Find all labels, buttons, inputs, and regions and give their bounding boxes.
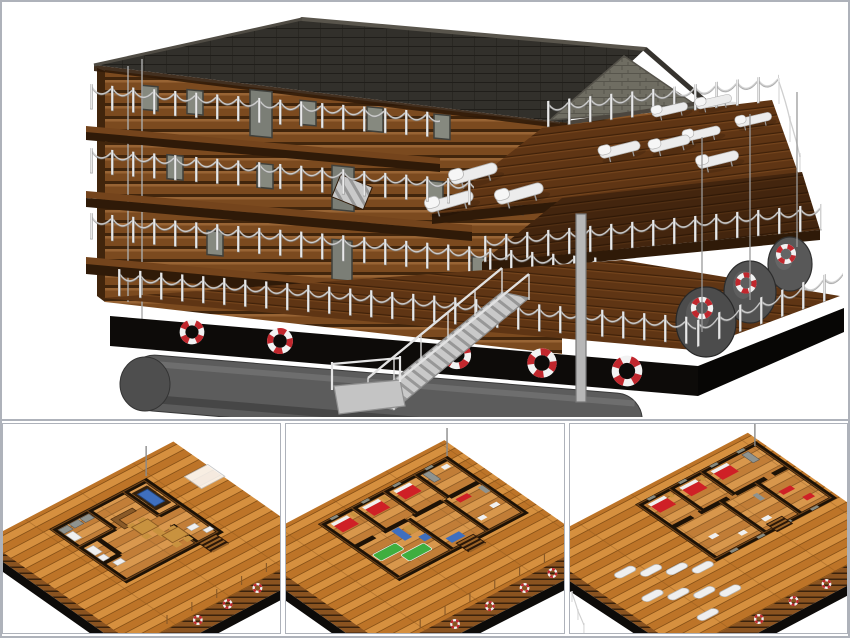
- deck-support-column: [576, 214, 586, 402]
- panel-deck-plan-upper: [569, 423, 848, 634]
- screenshot-frame: [0, 0, 850, 638]
- deck-plan-upper-render: [570, 424, 847, 633]
- panel-deck-plan-middle: [285, 423, 564, 634]
- panel-deck-plan-lower: [2, 423, 281, 634]
- deck-plan-row: [2, 421, 848, 634]
- houseboat-exterior-render: [2, 2, 848, 417]
- panel-main-exterior: [2, 2, 848, 421]
- deck-plan-lower-render: [3, 424, 280, 633]
- deck-plan-middle-render: [286, 424, 563, 633]
